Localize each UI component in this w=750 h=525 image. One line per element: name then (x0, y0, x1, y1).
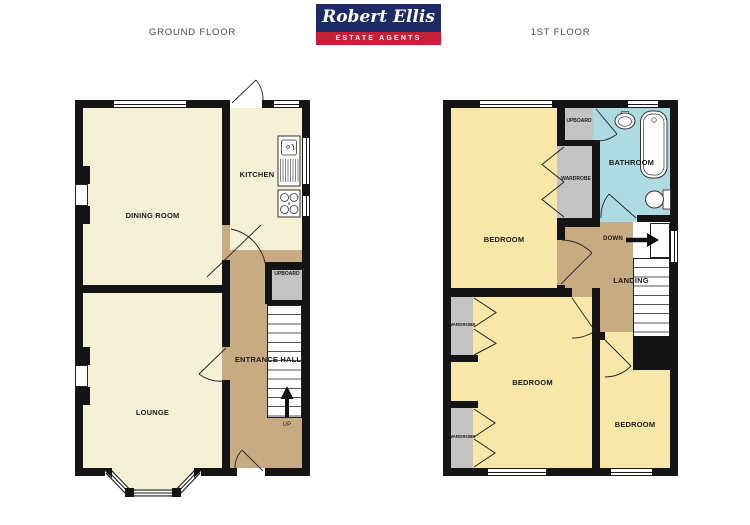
hob-icon (278, 190, 300, 217)
dining-hall-door (207, 225, 266, 277)
bathroom-sink-icon (615, 112, 635, 130)
bathroom-door (601, 194, 636, 218)
bedroom3-door (605, 340, 631, 377)
cupboard-door (596, 109, 617, 141)
bathtub-icon (641, 111, 668, 178)
bedroom2-label: BEDROOM (473, 379, 592, 387)
bedroom1-label: BEDROOM (451, 236, 557, 244)
wardrobe-label: WARDROBE (439, 323, 485, 328)
cupboard-label: UPBOARD (271, 272, 303, 277)
bedroom2-door (572, 298, 595, 338)
down-arrow-icon (626, 233, 659, 247)
lounge-door (199, 348, 226, 381)
floorplan-page: GROUND FLOOR Robert Ellis ESTATE AGENTS … (0, 0, 750, 525)
up-label: UP (275, 422, 299, 428)
down-label: DOWN (599, 236, 627, 242)
wardrobe-label: WARDROBE (439, 435, 485, 440)
ground-floor-plan-graphics (75, 100, 310, 505)
bay-window (102, 468, 204, 497)
kitchen-back-door (232, 80, 263, 103)
entrance-hall-label: ENTRANCE HALL (222, 356, 314, 364)
kitchen-sink-icon (278, 136, 300, 186)
kitchen-label: KITCHEN (227, 171, 287, 179)
up-arrow-icon (281, 386, 294, 417)
dining-room-label: DINING ROOM (83, 212, 222, 220)
cupboard-label: UPBOARD (563, 119, 595, 124)
bedroom1-door (561, 240, 592, 284)
first-floor-plan: BEDROOM BATHROOM UPBOARD WARDROBE DOWN L… (443, 100, 678, 480)
wardrobe-label: WARDROBE (555, 177, 597, 182)
landing-label: LANDING (605, 277, 657, 285)
estate-agent-logo: Robert Ellis ESTATE AGENTS (316, 4, 441, 45)
bathroom-label: BATHROOM (593, 159, 670, 167)
ground-floor-title: GROUND FLOOR (75, 27, 310, 38)
lounge-label: LOUNGE (83, 409, 222, 417)
first-floor-title: 1ST FLOOR (443, 27, 678, 38)
toilet-icon (646, 190, 671, 209)
front-door (235, 450, 263, 471)
logo-tagline: ESTATE AGENTS (316, 32, 441, 45)
ground-floor-plan: DINING ROOM KITCHEN UPBOARD ENTRANCE HAL… (75, 100, 310, 505)
bedroom3-label: BEDROOM (600, 421, 670, 429)
door-arcs (561, 109, 636, 377)
logo-brand-name: Robert Ellis (316, 4, 441, 32)
wardrobe-bifold-doors (474, 147, 564, 467)
